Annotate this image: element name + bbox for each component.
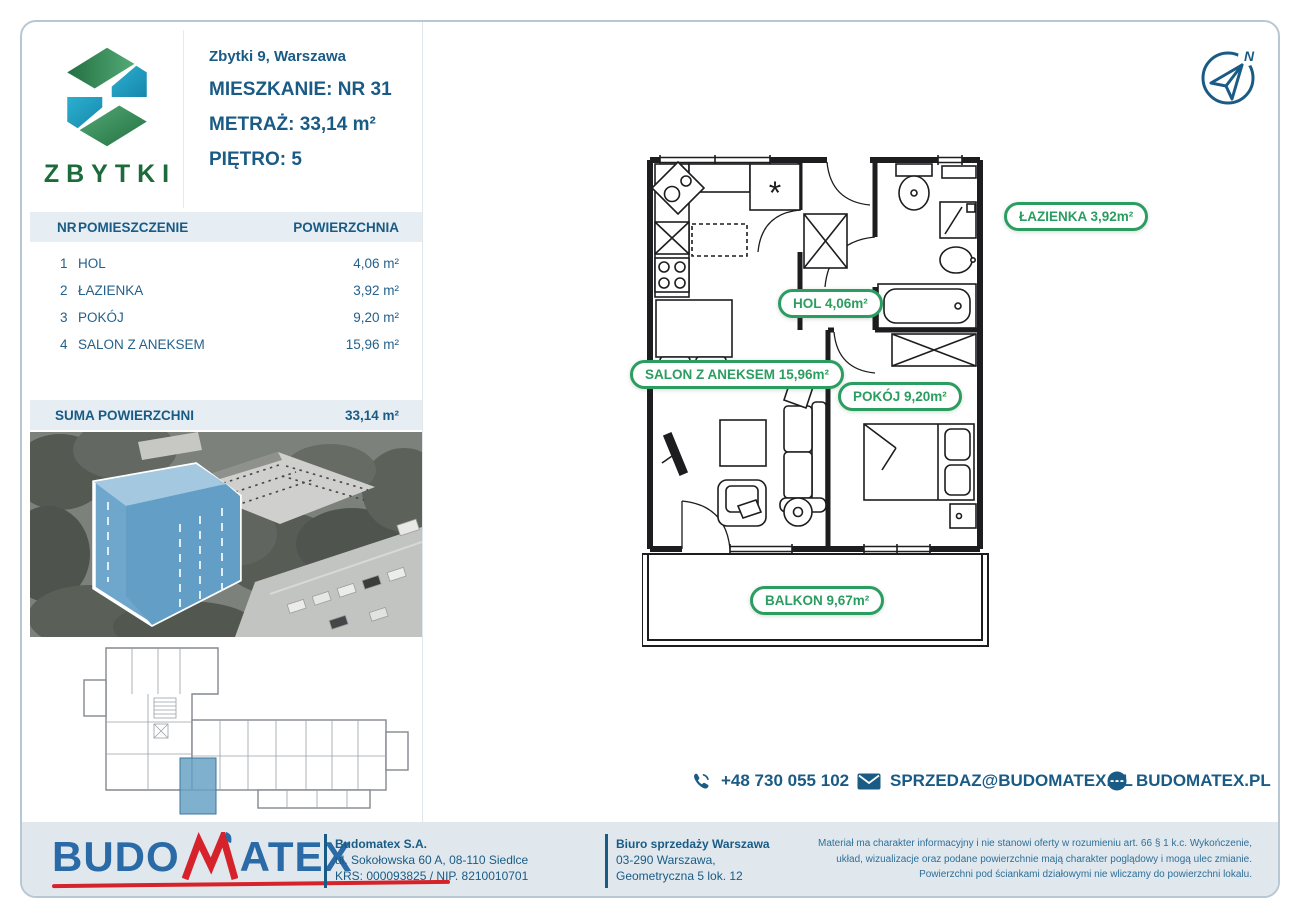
contact-website[interactable]: BUDOMATEX.PL	[1107, 768, 1271, 794]
row-area: 3,92 m²	[353, 283, 422, 298]
stove	[655, 258, 689, 292]
table-row: 1 HOL 4,06 m²	[30, 250, 422, 277]
budomatex-m-icon	[182, 832, 238, 880]
row-nr: 1	[30, 256, 78, 271]
row-area: 9,20 m²	[353, 310, 422, 325]
bed	[864, 424, 974, 500]
row-nr: 4	[30, 337, 78, 352]
apartment-area-row: METRAŻ: 33,14 m²	[209, 114, 422, 136]
storey-key-plan-drawing	[62, 644, 412, 819]
row-room: ŁAZIENKA	[78, 283, 353, 298]
www-globe-icon	[1107, 771, 1127, 791]
apartment-number-row: MIESZKANIE: NR 31	[209, 79, 422, 101]
company-ids: KRS: 000093825 / NIP. 8210010701	[335, 868, 595, 884]
area-value: 33,14 m²	[300, 114, 376, 135]
legal-disclaimer: Materiał ma charakter informacyjny i nie…	[800, 836, 1252, 883]
compass-north-icon: N	[1198, 44, 1262, 108]
apartment-label: MIESZKANIE:	[209, 79, 333, 100]
round-table	[784, 498, 812, 526]
row-nr: 3	[30, 310, 78, 325]
footer-divider	[605, 834, 608, 888]
washing-machine	[940, 202, 976, 238]
hall-wardrobe	[804, 214, 847, 268]
footer: BUDO ATEX Budomatex S.A. ul. Sokołowska …	[22, 822, 1280, 898]
row-room: POKÓJ	[78, 310, 353, 325]
contact-phone[interactable]: +48 730 055 102	[690, 768, 849, 794]
room-label-pokoj: POKÓJ 9,20m²	[838, 382, 962, 411]
room-label-lazienka: ŁAZIENKA 3,92m²	[1004, 202, 1148, 231]
bathroom-sink	[940, 247, 975, 273]
zbytki-hexagon-icon	[59, 44, 155, 150]
room-label-balkon: BALKON 9,67m²	[750, 586, 884, 615]
company-name: Budomatex S.A.	[335, 836, 595, 852]
tv	[664, 433, 687, 475]
office-name: Biuro sprzedaży Warszawa	[616, 836, 816, 852]
apartment-value: NR 31	[338, 79, 392, 100]
compass-north-label: N	[1244, 48, 1255, 64]
table-row: 4 SALON Z ANEKSEM 15,96 m²	[30, 331, 422, 358]
row-nr: 2	[30, 283, 78, 298]
area-label: METRAŻ:	[209, 114, 294, 135]
col-header-nr: NR	[30, 220, 78, 235]
storey-key-plan	[62, 644, 412, 819]
total-area-band: SUMA POWIERZCHNI 33,14 m²	[30, 400, 422, 430]
total-area-label: SUMA POWIERZCHNI	[30, 408, 194, 423]
kitchen-island	[656, 300, 732, 357]
floor-label: PIĘTRO:	[209, 149, 286, 170]
office-address-line1: 03-290 Warszawa,	[616, 852, 816, 868]
contact-website-url: BUDOMATEX.PL	[1136, 771, 1271, 791]
bathtub	[878, 284, 976, 328]
table-row: 3 POKÓJ 9,20 m²	[30, 304, 422, 331]
footer-company-column: Budomatex S.A. ul. Sokołowska 60 A, 08-1…	[335, 836, 595, 884]
armchair	[718, 480, 766, 526]
panel-divider	[422, 22, 423, 822]
col-header-area: POWIERZCHNIA	[293, 220, 422, 235]
rooms-table-header: NR POMIESZCZENIE POWIERZCHNIA	[30, 212, 422, 242]
aerial-photo	[30, 432, 422, 637]
total-area-value: 33,14 m²	[345, 408, 422, 423]
toilet	[896, 164, 932, 210]
kitchen-asterisk-mark: *	[769, 175, 781, 211]
footer-office-column: Biuro sprzedaży Warszawa 03-290 Warszawa…	[616, 836, 816, 884]
floor-value: 5	[291, 149, 302, 170]
contact-email-address: SPRZEDAZ@BUDOMATEX.PL	[890, 771, 1133, 791]
apartment-info: Zbytki 9, Warszawa MIESZKANIE: NR 31 MET…	[185, 30, 422, 208]
highlighted-unit	[180, 758, 216, 814]
company-address: ul. Sokołowska 60 A, 08-110 Siedlce	[335, 852, 595, 868]
aerial-photo-image	[30, 432, 422, 637]
zbytki-logo-text: ZBYTKI	[30, 160, 183, 189]
table-row: 2 ŁAZIENKA 3,92 m²	[30, 277, 422, 304]
row-area: 15,96 m²	[346, 337, 422, 352]
coffee-table	[720, 420, 766, 466]
contact-phone-number: +48 730 055 102	[721, 771, 849, 791]
row-room: SALON Z ANEKSEM	[78, 337, 346, 352]
kitchen-cabinet-cross	[655, 222, 689, 254]
flyer-frame: ZBYTKI Zbytki 9, Warszawa MIESZKANIE: NR…	[20, 20, 1280, 898]
rooms-table: 1 HOL 4,06 m² 2 ŁAZIENKA 3,92 m² 3 POKÓJ…	[30, 250, 422, 358]
nightstand	[950, 504, 976, 528]
room-label-salon: SALON Z ANEKSEM 15,96m²	[630, 360, 844, 389]
flyer-page: ZBYTKI Zbytki 9, Warszawa MIESZKANIE: NR…	[0, 0, 1300, 918]
row-room: HOL	[78, 256, 353, 271]
contact-email[interactable]: SPRZEDAZ@BUDOMATEX.PL	[857, 768, 1133, 794]
office-address-line2: Geometryczna 5 lok. 12	[616, 868, 816, 884]
phone-icon	[690, 771, 712, 791]
furniture	[652, 162, 976, 528]
developer-logo-box: ZBYTKI	[30, 30, 184, 208]
room-label-hol: HOL 4,06m²	[778, 289, 883, 318]
bedroom-wardrobe	[892, 334, 976, 366]
envelope-icon	[857, 773, 881, 790]
project-address: Zbytki 9, Warszawa	[209, 48, 422, 65]
col-header-room: POMIESZCZENIE	[78, 220, 293, 235]
sofa	[780, 376, 826, 512]
budomatex-logo-text-1: BUDO	[52, 836, 180, 878]
footer-divider	[324, 834, 327, 888]
row-area: 4,06 m²	[353, 256, 422, 271]
apartment-floor-row: PIĘTRO: 5	[209, 149, 422, 171]
